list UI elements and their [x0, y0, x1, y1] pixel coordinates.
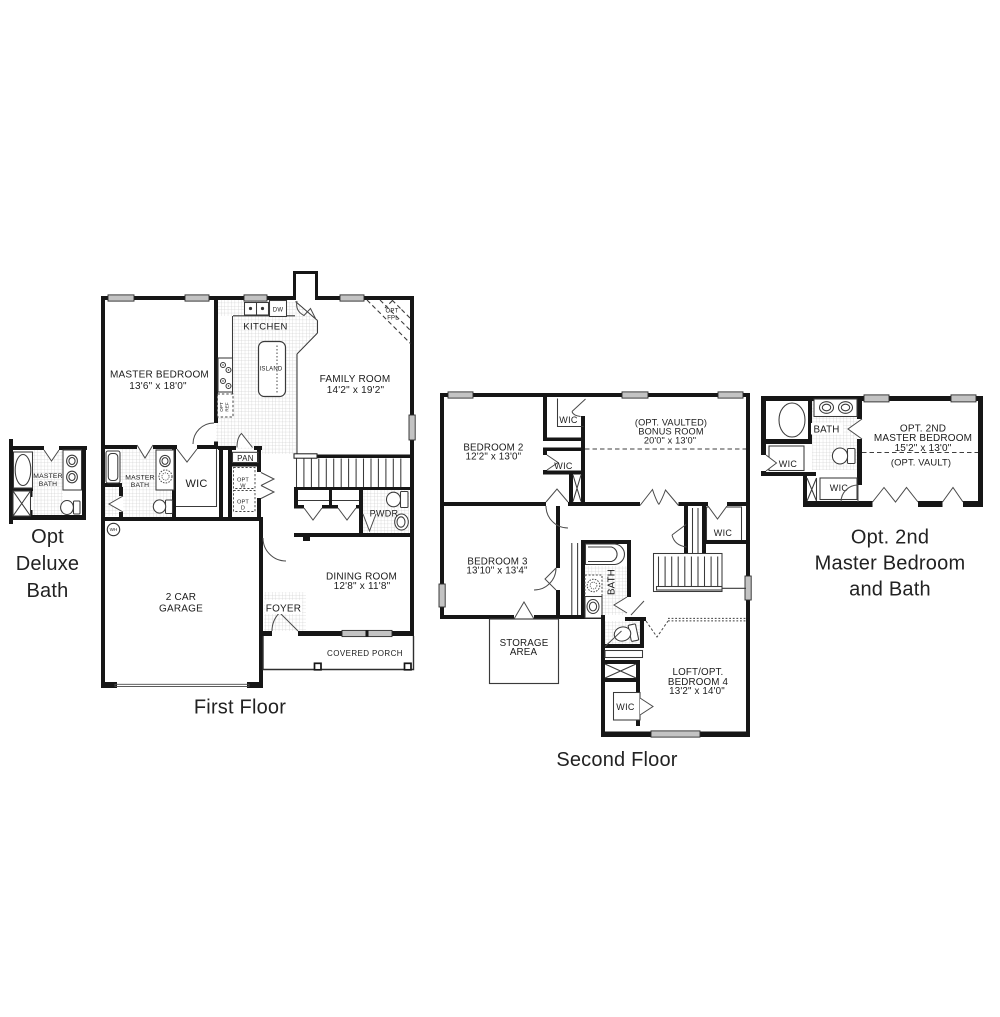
svg-text:20'0" x 13'0": 20'0" x 13'0": [644, 436, 696, 446]
svg-text:First Floor: First Floor: [194, 697, 286, 719]
svg-text:14'2" x 19'2": 14'2" x 19'2": [327, 385, 385, 396]
svg-text:WIC: WIC: [779, 459, 798, 469]
svg-text:BATH: BATH: [813, 425, 839, 436]
svg-text:Opt. 2nd: Opt. 2nd: [851, 527, 929, 549]
svg-text:WIC: WIC: [186, 478, 208, 490]
svg-text:D: D: [241, 506, 245, 512]
svg-text:BATH: BATH: [131, 482, 149, 489]
svg-text:WIC: WIC: [616, 702, 635, 712]
svg-text:OPT: OPT: [386, 309, 399, 315]
svg-text:FOYER: FOYER: [266, 604, 301, 615]
svg-text:13'2" x 14'0": 13'2" x 14'0": [669, 686, 725, 697]
svg-text:PAN: PAN: [237, 454, 254, 463]
svg-text:AREA: AREA: [510, 647, 538, 658]
svg-text:FAMILY ROOM: FAMILY ROOM: [320, 374, 391, 385]
svg-text:2 CAR: 2 CAR: [166, 592, 196, 603]
svg-text:Bath: Bath: [27, 580, 69, 602]
svg-text:WIC: WIC: [554, 461, 573, 471]
svg-text:Deluxe: Deluxe: [16, 553, 79, 575]
svg-text:MASTER: MASTER: [125, 474, 155, 481]
svg-text:BATH: BATH: [39, 481, 57, 488]
svg-text:KITCHEN: KITCHEN: [243, 322, 288, 333]
svg-text:MASTER BEDROOM: MASTER BEDROOM: [110, 370, 209, 381]
svg-text:Opt: Opt: [31, 526, 64, 548]
svg-text:Second Floor: Second Floor: [556, 749, 677, 771]
svg-text:PWDR: PWDR: [370, 509, 399, 519]
svg-text:(OPT. VAULT): (OPT. VAULT): [891, 457, 951, 468]
svg-text:and Bath: and Bath: [849, 579, 931, 601]
svg-text:WIC: WIC: [714, 528, 733, 538]
svg-text:FPL: FPL: [387, 316, 399, 322]
svg-text:12'2" x 13'0": 12'2" x 13'0": [466, 452, 522, 463]
svg-text:OPT: OPT: [219, 402, 224, 412]
svg-text:MASTER: MASTER: [33, 473, 63, 480]
svg-text:12'8" x 11'8": 12'8" x 11'8": [334, 581, 391, 592]
svg-text:GARAGE: GARAGE: [159, 604, 203, 615]
svg-text:DW: DW: [273, 308, 284, 314]
svg-text:15'2" x 13'0": 15'2" x 13'0": [895, 443, 952, 454]
svg-text:WIC: WIC: [559, 415, 578, 425]
svg-text:WH: WH: [110, 527, 118, 532]
svg-text:BATH: BATH: [607, 569, 618, 595]
svg-text:13'10" x 13'4": 13'10" x 13'4": [466, 566, 528, 577]
svg-text:13'6" x 18'0": 13'6" x 18'0": [129, 381, 187, 392]
svg-text:Master Bedroom: Master Bedroom: [815, 553, 966, 575]
svg-text:WIC: WIC: [830, 483, 849, 493]
svg-text:ISLAND: ISLAND: [260, 367, 283, 373]
svg-text:COVERED PORCH: COVERED PORCH: [327, 649, 403, 658]
svg-text:W: W: [240, 484, 246, 490]
svg-text:REF: REF: [225, 402, 230, 411]
